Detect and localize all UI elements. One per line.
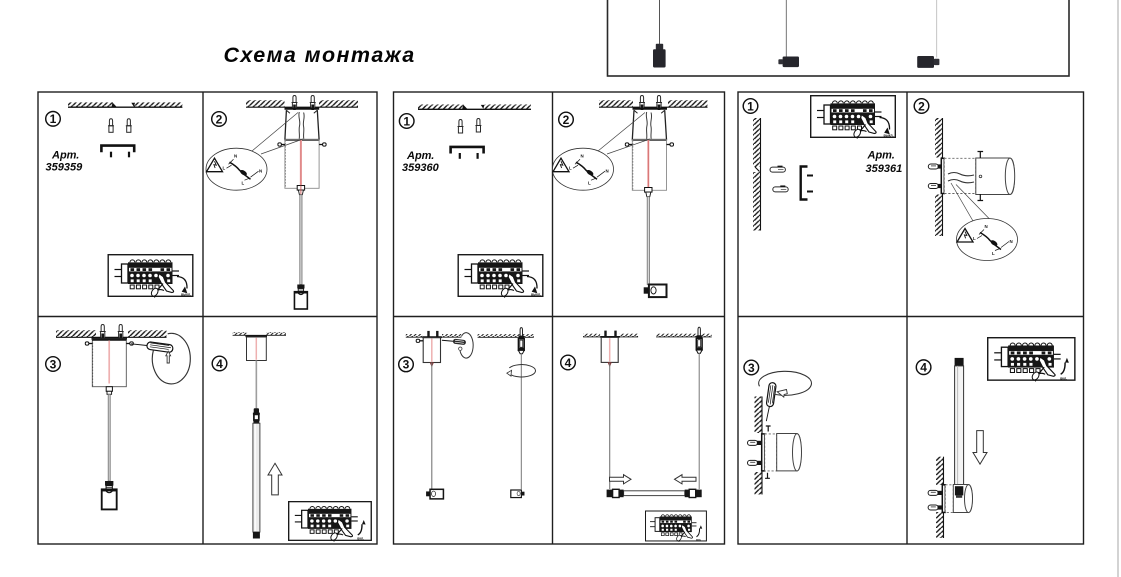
- svg-text:4: 4: [216, 357, 223, 371]
- svg-text:2: 2: [216, 112, 223, 126]
- svg-text:Арт.: Арт.: [406, 150, 434, 162]
- svg-text:2: 2: [918, 99, 925, 113]
- svg-text:2: 2: [563, 113, 570, 127]
- svg-text:4: 4: [565, 356, 572, 370]
- svg-text:Схема монтажа: Схема монтажа: [224, 43, 416, 67]
- svg-text:359359: 359359: [46, 162, 84, 174]
- svg-text:Арт.: Арт.: [51, 149, 79, 161]
- svg-text:4: 4: [920, 361, 927, 375]
- svg-text:1: 1: [403, 114, 410, 128]
- svg-text:1: 1: [747, 99, 754, 113]
- svg-text:3: 3: [403, 358, 410, 372]
- svg-text:Арт.: Арт.: [867, 149, 895, 161]
- svg-text:3: 3: [50, 357, 57, 371]
- svg-text:359361: 359361: [866, 163, 903, 175]
- svg-text:359360: 359360: [402, 162, 440, 174]
- svg-text:1: 1: [50, 112, 57, 126]
- svg-text:3: 3: [748, 361, 755, 375]
